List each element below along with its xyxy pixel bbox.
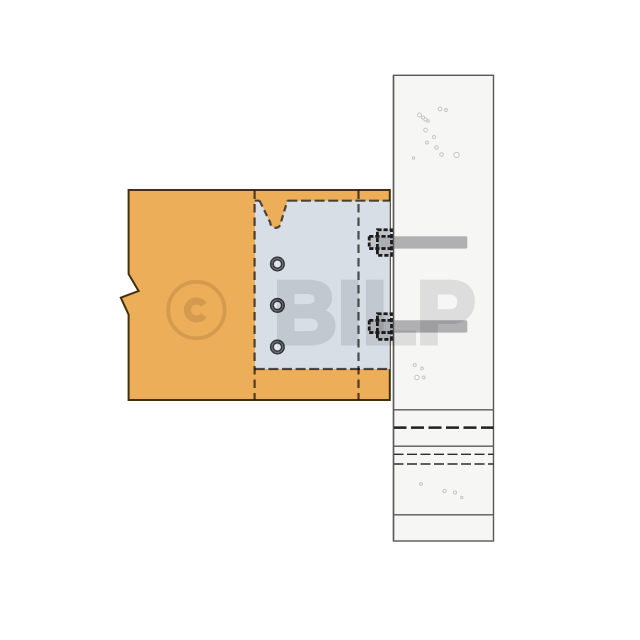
svg-text:BILP: BILP [274,263,476,362]
